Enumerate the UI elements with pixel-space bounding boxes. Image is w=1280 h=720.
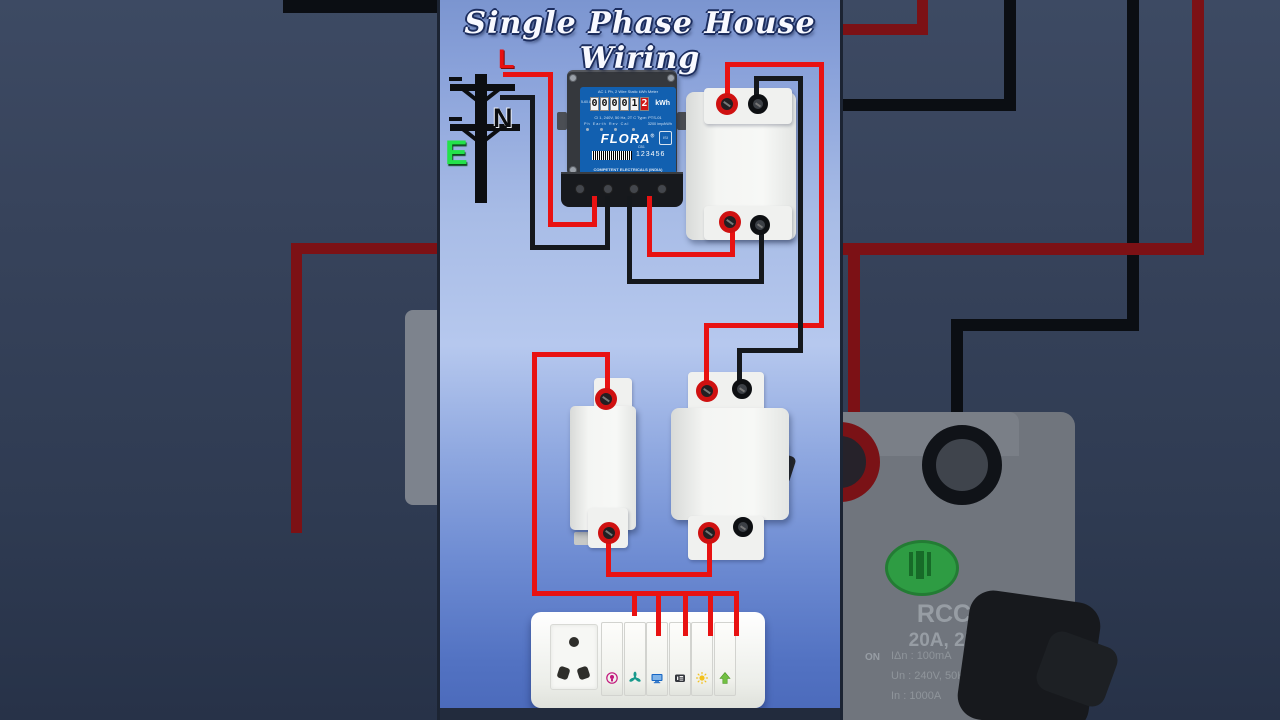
wire-neutral	[530, 245, 610, 250]
meter-digit: 0	[620, 97, 629, 111]
fan-icon	[628, 671, 642, 685]
wire-live-drop	[632, 591, 637, 616]
meter-digit: 0	[590, 97, 599, 111]
wire-live	[647, 252, 735, 257]
wire-live-drop	[683, 591, 688, 636]
energy-meter: AC 1 Ph, 2 Wire Static kWh Meter 0 0 0 0…	[561, 62, 683, 205]
page-title: Single Phase House Wiring	[440, 6, 840, 76]
socket-pin-hole	[576, 666, 590, 681]
meter-sub-brand: CB1	[638, 145, 645, 149]
meter-header: AC 1 Ph, 2 Wire Static kWh Meter	[580, 89, 676, 94]
meter-brand-text: FLORA	[601, 131, 651, 146]
terminal-live	[698, 522, 720, 544]
earth-label: E	[445, 134, 468, 173]
wiring-diagram-panel: Single Phase House Wiring L N E	[437, 0, 843, 720]
switch-light-point[interactable]	[601, 622, 623, 696]
terminal-neutral	[733, 517, 753, 537]
wire-live-drop	[656, 591, 661, 636]
wire-neutral	[627, 196, 632, 284]
meter-register: 0 0 0 0 1 2	[590, 97, 649, 111]
wire-live	[606, 572, 712, 577]
bg-wire-red	[291, 243, 437, 254]
bg-wire-red	[1192, 0, 1204, 255]
wire-live	[532, 352, 537, 596]
terminal-neutral	[748, 94, 768, 114]
meter-digit: 1	[630, 97, 639, 111]
pole-insulator	[449, 77, 462, 81]
terminal-neutral	[750, 215, 770, 235]
wire-live	[548, 222, 597, 227]
wire-neutral	[530, 95, 535, 250]
meter-indicator-labels: Ph Earth Rev Cal	[584, 122, 629, 126]
wire-live	[704, 323, 709, 383]
bg-rccb-indicator	[885, 540, 959, 596]
socket-pin-hole	[556, 666, 570, 681]
background-left-panel	[0, 0, 437, 720]
light-sun-icon	[695, 671, 709, 685]
switch-group	[601, 622, 647, 696]
bg-terminal-neutral	[922, 425, 1002, 505]
meter-brand: FLORA®	[580, 131, 676, 146]
dp-mcb: S STANDARD DP I-ON I-ON 25MSCDPP032 C 32…	[686, 88, 798, 240]
wire-live	[605, 352, 610, 392]
wire-live	[548, 72, 553, 227]
bg-wire-black	[1127, 0, 1139, 331]
bg-wire-black	[951, 319, 1139, 331]
barcode	[592, 151, 632, 160]
bg-wire-red	[917, 0, 928, 35]
meter-body: AC 1 Ph, 2 Wire Static kWh Meter 0 0 0 0…	[567, 70, 677, 176]
meter-face: AC 1 Ph, 2 Wire Static kWh Meter 0 0 0 0…	[580, 87, 676, 180]
screw-icon	[657, 184, 667, 194]
meter-digit: 0	[600, 97, 609, 111]
bg-wire-black	[843, 99, 1016, 111]
wire-live	[819, 62, 824, 328]
wire-live	[532, 352, 610, 357]
power-socket[interactable]	[550, 624, 598, 690]
wire-live	[647, 196, 652, 252]
switch-fan[interactable]	[624, 622, 646, 696]
arrow-up-icon	[718, 671, 732, 685]
terminal-live	[598, 522, 620, 544]
registered-mark: ®	[651, 134, 656, 140]
meter-mounting-ear	[557, 112, 567, 130]
socket-earth-hole	[569, 637, 579, 647]
bg-wire-black	[283, 0, 437, 13]
rccb-body	[671, 408, 789, 520]
screw-icon	[575, 184, 585, 194]
screw-icon	[629, 184, 639, 194]
meter-spec-line: Cl 1, 240V, 50 Hz, 2T C Type: PTS-01	[580, 115, 676, 120]
wire-live	[704, 323, 824, 328]
terminal-live	[696, 380, 718, 402]
bg-rccb-on: ON	[865, 652, 880, 663]
television-icon	[650, 671, 664, 685]
meter-terminal-cover	[561, 172, 683, 207]
bg-rccb-current: In : 1000A	[891, 690, 941, 702]
switch-board	[531, 608, 765, 710]
terminal-live	[716, 93, 738, 115]
meter-digit: 0	[610, 97, 619, 111]
wire-neutral	[737, 348, 742, 382]
terminal-neutral	[732, 379, 752, 399]
meter-imp-rate: 3200 imp/kWh	[648, 122, 672, 126]
wire-neutral	[759, 230, 764, 279]
bg-wire-red	[843, 243, 1204, 255]
bg-wire-black	[1004, 0, 1016, 111]
bg-wire-red	[291, 243, 302, 533]
wire-neutral	[754, 76, 803, 81]
bg-wire-red	[843, 24, 928, 35]
wire-live-drop	[734, 591, 739, 636]
switch-group	[691, 622, 737, 696]
wire-neutral	[798, 76, 803, 353]
background-right-panel: RCCB 20A, 2P ON IΔn : 100mA Un : 240V, 5…	[843, 0, 1280, 720]
meter-digit-tenths: 2	[640, 97, 649, 111]
meter-serial: 123456	[636, 151, 665, 158]
rccb-device: RCCB 20A, 2P ON IΔn : 100mA Un : 240V, 5…	[671, 368, 793, 565]
ac-socket-icon	[673, 671, 687, 685]
bulb-point-icon	[605, 671, 619, 685]
dp-mcb-bottom-terminal-block	[704, 206, 792, 240]
wire-live	[592, 196, 597, 227]
wire-neutral	[605, 196, 610, 245]
bottom-letterbox	[440, 708, 843, 720]
meter-unit: kWh	[655, 100, 670, 107]
video-frame: RCCB 20A, 2P ON IΔn : 100mA Un : 240V, 5…	[0, 0, 1280, 720]
switch-regulator[interactable]	[714, 622, 736, 696]
terminal-live	[595, 388, 617, 410]
bg-device-edge	[405, 310, 437, 505]
bg-rccb-sens: IΔn : 100mA	[891, 650, 952, 662]
meter-current-range: 5-60 A	[581, 100, 591, 104]
pole-insulator	[449, 117, 462, 121]
wire-neutral	[737, 348, 803, 353]
screw-icon	[603, 184, 613, 194]
terminal-live	[719, 211, 741, 233]
wire-live-drop	[708, 591, 713, 636]
neutral-label: N	[493, 103, 513, 134]
wire-neutral	[627, 279, 764, 284]
